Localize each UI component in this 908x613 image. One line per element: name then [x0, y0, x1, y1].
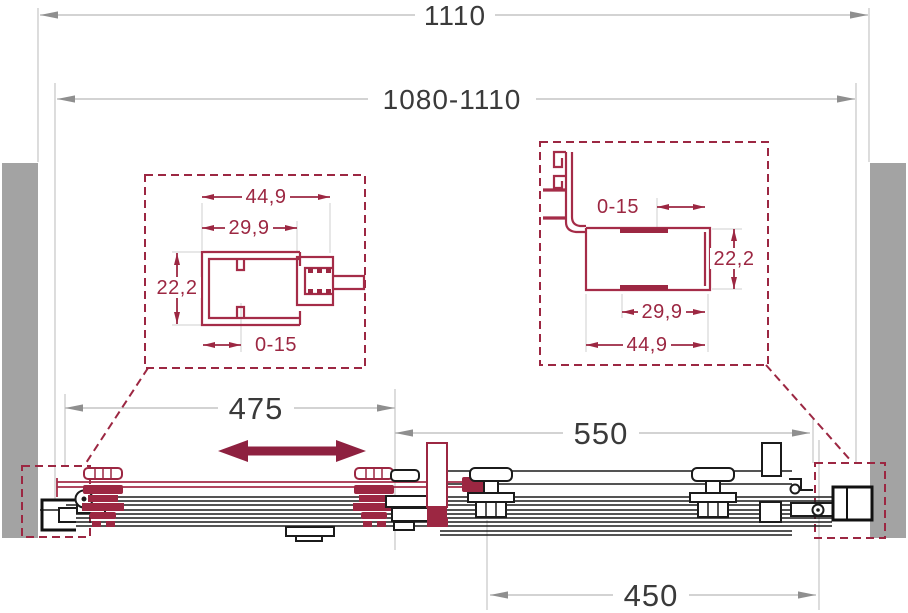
glass-panel-edge — [333, 276, 364, 289]
right-dim-adjust: 0-15 — [597, 196, 639, 218]
drawing-svg: 1110 1080-1110 475 550 450 — [0, 0, 908, 613]
door-handle — [427, 443, 447, 507]
dim-label-opening: 450 — [624, 578, 679, 613]
left-leader-line — [84, 368, 148, 466]
right-dim-height: 22,2 — [714, 248, 755, 270]
left-dim-outer-width: 44,9 — [246, 186, 287, 208]
dim-adjustable-range: 1080-1110 — [57, 84, 855, 115]
dim-label-door: 475 — [229, 391, 284, 426]
bottom-guide-tab — [286, 527, 334, 536]
dim-label-fixed: 550 — [574, 416, 629, 451]
right-wall-profile — [789, 479, 872, 520]
dim-label-overall: 1110 — [424, 0, 486, 31]
wall-profile-drawing — [543, 152, 710, 290]
slide-direction-arrow-icon — [218, 440, 366, 462]
bottom-assembly — [22, 443, 885, 541]
stabilizer-tab-bottom — [760, 502, 781, 522]
right-dim-inner-width: 29,9 — [642, 301, 683, 323]
technical-drawing-canvas: 1110 1080-1110 475 550 450 — [0, 0, 908, 613]
left-dim-height: 22,2 — [157, 277, 198, 299]
door-profile-drawing — [202, 252, 364, 325]
left-dim-inner-width: 29,9 — [229, 217, 270, 239]
right-wall — [870, 163, 906, 538]
dim-fixed-panel: 550 — [395, 416, 810, 451]
left-wall — [2, 163, 38, 538]
dim-opening: 450 — [490, 578, 816, 613]
guide-rails — [40, 471, 871, 535]
right-dim-outer-width: 44,9 — [627, 334, 668, 356]
dim-overall-width: 1110 — [40, 0, 868, 31]
dim-label-adjustable: 1080-1110 — [383, 84, 522, 115]
dim-door-panel: 475 — [65, 391, 395, 426]
left-dim-adjust: 0-15 — [255, 334, 297, 356]
right-detail-box: 0-15 22,2 29,9 44,9 — [540, 142, 852, 462]
stabilizer-tab-top — [762, 443, 781, 476]
